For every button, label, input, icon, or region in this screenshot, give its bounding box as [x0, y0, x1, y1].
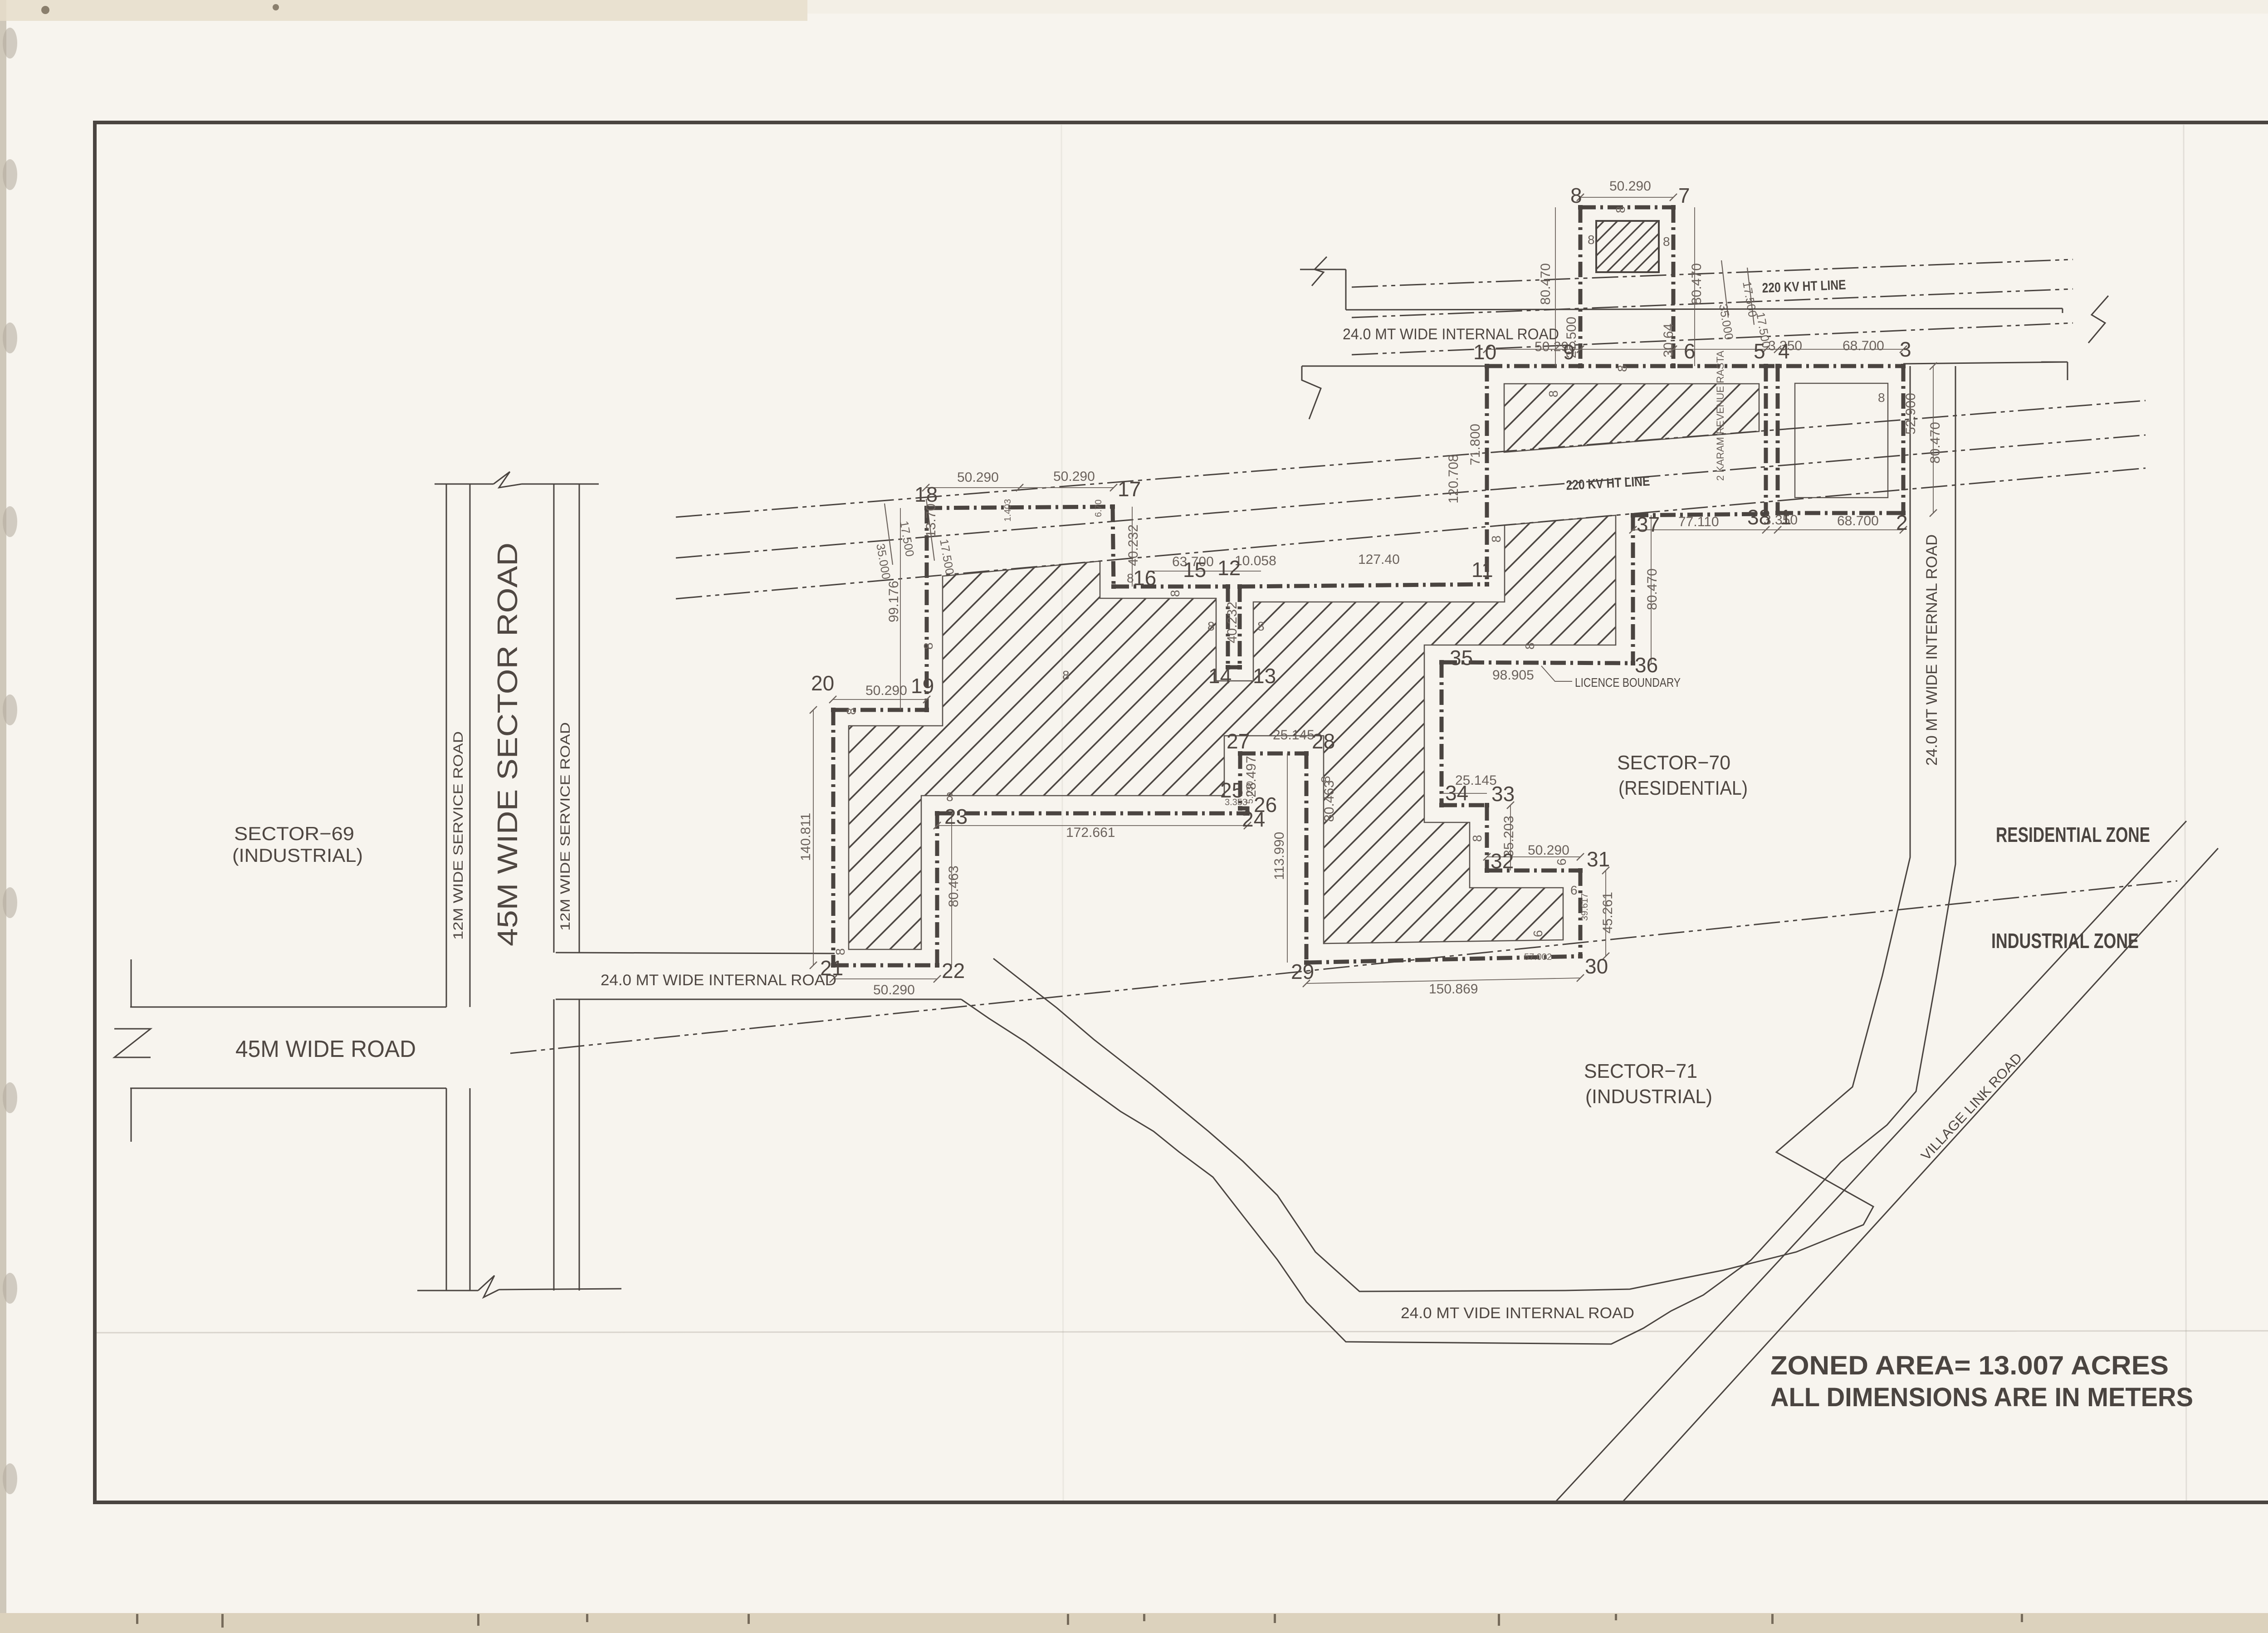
svg-text:80.470: 80.470: [1538, 263, 1553, 305]
svg-text:8: 8: [1062, 668, 1070, 682]
svg-text:80.470: 80.470: [1928, 422, 1943, 464]
svg-text:8: 8: [1546, 390, 1560, 397]
svg-text:40.232: 40.232: [1126, 524, 1141, 566]
svg-text:1: 1: [1780, 505, 1792, 529]
svg-text:50.290: 50.290: [873, 983, 915, 997]
svg-text:1.403: 1.403: [1003, 499, 1013, 522]
svg-text:39.617: 39.617: [1580, 893, 1590, 921]
svg-text:9: 9: [1563, 340, 1575, 364]
svg-text:24.0 MT VIDE INTERNAL ROAD: 24.0 MT VIDE INTERNAL ROAD: [1401, 1305, 1634, 1322]
svg-text:8: 8: [1168, 590, 1182, 597]
svg-text:32: 32: [1491, 849, 1514, 873]
svg-text:12M WIDE SERVICE ROAD: 12M WIDE SERVICE ROAD: [558, 722, 573, 931]
svg-text:8: 8: [833, 948, 847, 955]
svg-text:RESIDENTIAL ZONE: RESIDENTIAL ZONE: [1996, 823, 2150, 846]
svg-text:23: 23: [944, 805, 968, 828]
svg-text:INDUSTRIAL ZONE: INDUSTRIAL ZONE: [1991, 929, 2139, 953]
svg-text:25: 25: [1220, 778, 1243, 802]
svg-text:19: 19: [911, 674, 934, 698]
svg-text:24.0 MT WIDE INTERNAL ROAD: 24.0 MT WIDE INTERNAL ROAD: [1343, 326, 1559, 343]
svg-text:6: 6: [1554, 858, 1569, 865]
svg-text:6: 6: [1570, 883, 1578, 897]
svg-text:38: 38: [1747, 505, 1770, 529]
svg-text:71.800: 71.800: [1468, 424, 1483, 465]
svg-text:8: 8: [1613, 206, 1628, 213]
svg-text:80.463: 80.463: [1322, 780, 1337, 822]
svg-text:11: 11: [1471, 558, 1493, 582]
svg-text:45.261: 45.261: [1600, 892, 1615, 934]
svg-text:28: 28: [1312, 729, 1335, 753]
svg-text:ALL DIMENSIONS ARE IN METERS: ALL DIMENSIONS ARE IN METERS: [1770, 1383, 2193, 1412]
svg-text:172.661: 172.661: [1066, 825, 1115, 840]
svg-text:33: 33: [1491, 782, 1515, 806]
svg-text:12: 12: [1217, 556, 1241, 580]
svg-text:24.0 MT WIDE INTERNAL ROAD: 24.0 MT WIDE INTERNAL ROAD: [1923, 534, 1941, 766]
svg-text:25.145: 25.145: [1273, 728, 1315, 743]
svg-text:8: 8: [1570, 184, 1582, 207]
svg-text:8: 8: [1319, 776, 1333, 783]
svg-text:8: 8: [1257, 619, 1265, 633]
svg-text:99.176: 99.176: [886, 581, 901, 622]
svg-text:8: 8: [1663, 235, 1670, 249]
svg-text:30.64: 30.64: [1661, 323, 1676, 357]
svg-text:20: 20: [811, 671, 834, 695]
svg-text:8: 8: [1615, 365, 1629, 372]
svg-text:10.058: 10.058: [1235, 553, 1276, 568]
svg-text:8: 8: [1523, 642, 1537, 650]
svg-text:22: 22: [942, 959, 965, 983]
svg-text:8: 8: [1489, 535, 1503, 543]
svg-text:3: 3: [1900, 337, 1911, 361]
svg-text:24.0 MT WIDE INTERNAL ROAD: 24.0 MT WIDE INTERNAL ROAD: [601, 972, 836, 989]
svg-text:52.900: 52.900: [1903, 393, 1918, 435]
svg-text:SECTOR−70: SECTOR−70: [1617, 752, 1730, 774]
svg-text:50.290: 50.290: [957, 470, 999, 485]
svg-text:35: 35: [1450, 646, 1473, 670]
svg-text:SECTOR−71: SECTOR−71: [1584, 1060, 1697, 1082]
svg-text:ZONED AREA= 13.007 ACRES: ZONED AREA= 13.007 ACRES: [1770, 1351, 2169, 1380]
svg-text:13: 13: [1253, 664, 1276, 688]
svg-text:45M WIDE ROAD: 45M WIDE ROAD: [235, 1036, 416, 1062]
svg-text:14: 14: [1208, 664, 1232, 688]
svg-text:220 KV HT LINE: 220 KV HT LINE: [1762, 278, 1846, 296]
svg-text:113.990: 113.990: [1272, 832, 1287, 880]
svg-text:50.290: 50.290: [865, 683, 907, 698]
svg-text:2: 2: [1896, 511, 1908, 534]
svg-text:8: 8: [946, 790, 953, 804]
svg-text:12M WIDE SERVICE ROAD: 12M WIDE SERVICE ROAD: [451, 731, 466, 940]
svg-text:26: 26: [1254, 793, 1277, 816]
svg-text:SECTOR−69: SECTOR−69: [234, 823, 354, 844]
svg-text:17.500: 17.500: [937, 538, 957, 576]
svg-text:(RESIDENTIAL): (RESIDENTIAL): [1618, 777, 1748, 799]
svg-text:98.905: 98.905: [1492, 668, 1534, 683]
svg-text:34: 34: [1445, 781, 1468, 805]
svg-text:127.40: 127.40: [1358, 552, 1400, 567]
svg-text:8: 8: [844, 708, 858, 715]
svg-text:8: 8: [921, 642, 935, 650]
svg-text:220 KV HT LINE: 220 KV HT LINE: [1566, 474, 1650, 493]
svg-text:4: 4: [1778, 339, 1790, 363]
svg-text:8: 8: [1878, 391, 1885, 405]
svg-text:5: 5: [1754, 339, 1765, 363]
svg-text:120.708: 120.708: [1446, 455, 1461, 504]
svg-text:15: 15: [1183, 558, 1206, 582]
svg-text:2 KARAM REVENUE RASTA: 2 KARAM REVENUE RASTA: [1715, 351, 1726, 481]
svg-text:80.470: 80.470: [1645, 568, 1660, 610]
svg-text:68.700: 68.700: [1837, 513, 1879, 528]
svg-text:50.290: 50.290: [1053, 469, 1095, 484]
svg-text:6.70: 6.70: [1094, 499, 1104, 517]
svg-text:18: 18: [914, 483, 938, 506]
svg-text:(INDUSTRIAL): (INDUSTRIAL): [1585, 1085, 1712, 1108]
svg-text:8: 8: [1207, 619, 1215, 633]
svg-text:16: 16: [1133, 566, 1156, 590]
svg-text:7: 7: [1678, 184, 1690, 207]
svg-text:77.110: 77.110: [1678, 514, 1719, 529]
svg-text:6: 6: [1684, 339, 1696, 363]
svg-text:36: 36: [1635, 653, 1658, 677]
svg-text:37: 37: [1637, 513, 1660, 536]
svg-text:29: 29: [1291, 960, 1314, 983]
svg-text:80.470: 80.470: [1689, 263, 1704, 305]
svg-text:31: 31: [1587, 847, 1610, 871]
svg-text:LICENCE BOUNDARY: LICENCE BOUNDARY: [1575, 675, 1681, 689]
svg-text:50.290: 50.290: [1528, 843, 1569, 858]
svg-text:50.290: 50.290: [1609, 179, 1651, 194]
svg-text:8: 8: [1470, 835, 1484, 842]
svg-text:30: 30: [1585, 954, 1608, 978]
svg-text:6: 6: [1531, 930, 1545, 937]
svg-text:68.700: 68.700: [1843, 338, 1884, 353]
svg-text:17: 17: [1118, 477, 1141, 501]
svg-text:13.70: 13.70: [924, 504, 938, 538]
svg-text:80.463: 80.463: [946, 865, 961, 907]
svg-text:57.002: 57.002: [1524, 952, 1552, 962]
svg-text:40.232: 40.232: [1225, 601, 1240, 643]
svg-text:45M WIDE SECTOR ROAD: 45M WIDE SECTOR ROAD: [492, 543, 523, 946]
svg-text:(INDUSTRIAL): (INDUSTRIAL): [232, 845, 363, 866]
svg-text:150.869: 150.869: [1429, 982, 1478, 997]
svg-text:27: 27: [1227, 729, 1250, 753]
svg-text:8: 8: [1588, 233, 1595, 247]
svg-text:10: 10: [1473, 340, 1496, 364]
svg-text:140.811: 140.811: [798, 813, 813, 861]
svg-text:VILLAGE LINK ROAD: VILLAGE LINK ROAD: [1918, 1051, 2025, 1164]
